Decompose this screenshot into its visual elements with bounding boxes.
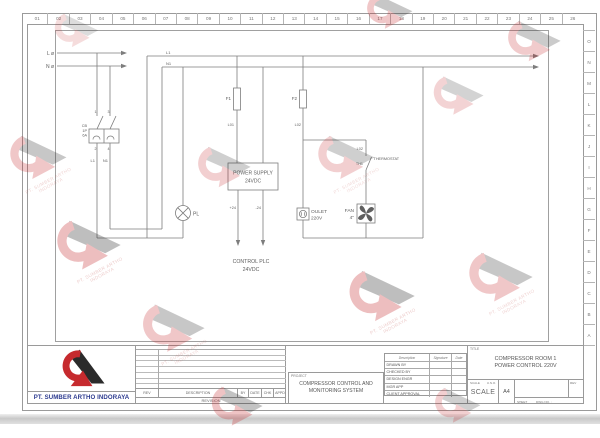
schematic-sheet: { "ruler": { "top": ["01","02","03","04"…: [0, 0, 600, 424]
fuse-f2-symbol: [300, 90, 307, 108]
thermostat-switch: [366, 140, 372, 204]
bus-wires: [147, 56, 533, 67]
fuse-f1-label: F1: [226, 96, 232, 101]
rev-header-description: DESCRIPTION: [158, 389, 237, 397]
rev-column-divider: [158, 349, 159, 388]
rev-header-date: DATE: [248, 389, 261, 397]
approval-row-mgr: MGR APP: [385, 383, 466, 390]
power-supply-box: [228, 163, 278, 190]
project-label: PROJECT: [291, 374, 307, 378]
approval-row-client: CLIENT APPROVAL: [385, 390, 466, 397]
psu-label-2: 24VDC: [245, 179, 262, 185]
title-area: TITLE COMPRESSOR ROOM 1 POWER CONTROL 22…: [467, 346, 583, 403]
psu-neg-label: -24: [256, 206, 262, 210]
wire-l1-label: L1: [91, 158, 96, 163]
rev-header-chk: CHK: [261, 389, 273, 397]
outlet-label-1: OULET: [311, 209, 327, 215]
approval-divider-1: [429, 354, 430, 397]
cb-name-label: CB: [82, 124, 88, 128]
psu-label-1: POWER SUPPLY: [233, 171, 273, 177]
approval-row-design: DESIGN ENGR: [385, 375, 466, 382]
company-logo-cell: PT. SUMBER ARTHO INDORAYA: [28, 346, 136, 403]
fan-label-2: 4": [350, 215, 355, 221]
revision-caption: REVISION: [136, 397, 286, 403]
outlet-symbol: [297, 208, 309, 220]
company-logo: [56, 347, 108, 387]
feed-l-label: L ø: [47, 51, 54, 57]
approval-divider-2: [451, 354, 452, 397]
cb-blades: [97, 116, 116, 129]
rev-header-appd: APPD: [273, 389, 286, 397]
page-edge-shadow: [0, 414, 600, 424]
rev-header-rev: REV: [136, 389, 158, 397]
rev-box: REV: [568, 380, 584, 397]
title-block: PT. SUMBER ARTHO INDORAYA REV DESCRIPTIO…: [27, 345, 584, 404]
thermostat-wire-label: L02: [357, 147, 363, 151]
fuse-f1-symbol: [234, 88, 241, 110]
sheet-label: SHEET: [517, 400, 527, 404]
drawing-title-2: POWER CONTROL 220V: [468, 363, 583, 370]
approval-header-description: Description: [385, 354, 429, 361]
outlet-label-2: 220V: [311, 216, 323, 222]
drawing-title-1: COMPRESSOR ROOM 1: [468, 356, 583, 363]
fan-blades: [358, 206, 374, 222]
feed-n-label: N ø: [46, 64, 54, 70]
cb-terminal-4: 4: [108, 147, 110, 151]
psu-pos-label: +24: [230, 206, 236, 210]
plc-label-1: CONTROL PLC: [233, 259, 270, 265]
incoming-feed-wires: [57, 53, 121, 66]
approval-row-checked: CHECKED BY: [385, 368, 466, 375]
rev-box-label: REV: [570, 381, 576, 385]
bus-n1-label: N1: [166, 61, 172, 66]
wire-l01-label: L01: [228, 123, 234, 127]
cb-terminal-1: 1: [95, 110, 97, 114]
cb-terminal-3: 3: [108, 110, 110, 114]
cb-breaker-symbol: [89, 129, 119, 143]
scale-value: SCALE: [468, 385, 498, 400]
project-line-2: MONITORING SYSTEM: [289, 388, 383, 395]
scale-cell: SCALE U.N.O. SCALE: [468, 380, 498, 404]
title-label: TITLE: [470, 347, 479, 351]
paper-size-cell: A4: [498, 380, 515, 404]
wire-l02-label: L02: [295, 123, 301, 127]
dwg-no-label: DWG NO. :: [536, 400, 552, 404]
thermostat-label: THERMOSTAT: [374, 157, 400, 161]
plc-label-2: 24VDC: [243, 267, 260, 273]
rev-header-by: BY: [237, 389, 248, 397]
pilot-lamp-label: PL: [193, 212, 199, 218]
wire-n1-label: N1: [103, 158, 109, 163]
approval-row-drawn: DRAWN BY: [385, 361, 466, 368]
cb-terminal-2: 2: [95, 147, 97, 151]
bus-l1-label: L1: [166, 50, 171, 55]
dwg-cell: REV SHEET DWG NO. :: [515, 380, 584, 404]
project-line-1: COMPRESSOR CONTROL AND: [289, 381, 383, 388]
fan-label-1: FAN: [345, 208, 355, 214]
scale-uno-label: U.N.O.: [487, 381, 496, 385]
approval-header-signature: Signature: [429, 354, 451, 361]
thermostat-tag-label: TH1: [356, 162, 363, 166]
scale-label: SCALE: [470, 381, 480, 385]
flow-arrows: [121, 51, 539, 246]
approval-table: Description Signature Date DRAWN BY CHEC…: [384, 353, 467, 396]
company-name: PT. SUMBER ARTHO INDORAYA: [28, 391, 135, 403]
pilot-lamp-symbol: [176, 67, 191, 238]
project-box: PROJECT COMPRESSOR CONTROL AND MONITORIN…: [288, 372, 384, 403]
revision-table: REV DESCRIPTION BY DATE CHK APPD REVISIO…: [136, 346, 286, 403]
fuse-f2-label: F2: [292, 96, 298, 101]
cb-poles-label: 1P: [82, 129, 87, 133]
approval-header-date: Date: [451, 354, 466, 361]
cb-rating-label: 6A: [82, 134, 87, 138]
